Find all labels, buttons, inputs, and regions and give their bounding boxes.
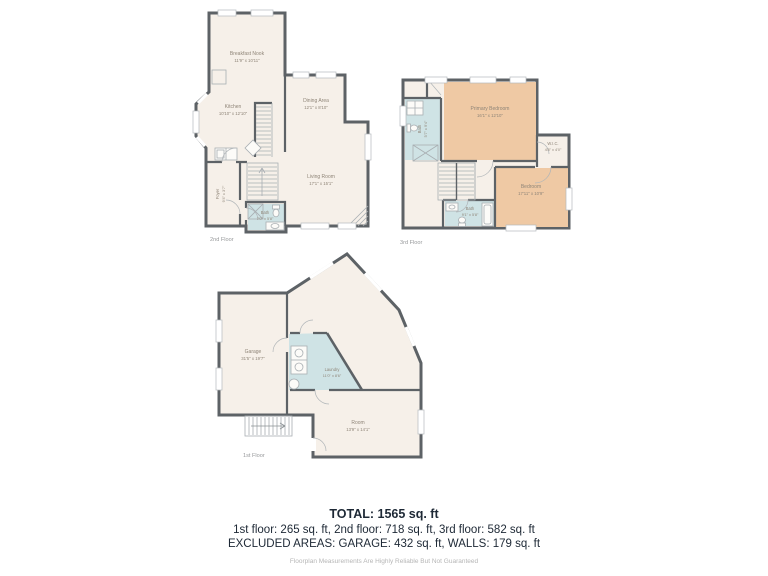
floorplan-page: Breakfast Nook 11'9" x 10'11" Kitchen 10… xyxy=(0,0,768,576)
water-heater xyxy=(289,379,299,389)
bedroom-fill xyxy=(496,168,568,227)
summary: TOTAL: 1565 sq. ft 1st floor: 265 sq. ft… xyxy=(0,507,768,565)
room-label-bedroom: Bedroom xyxy=(521,184,541,190)
room-dims-room: 13'9" x 14'1" xyxy=(346,427,370,432)
exterior-stairs xyxy=(245,416,292,436)
room-label-bath2: Bath xyxy=(261,210,270,215)
room-dims-wic: 4'8" x 4'0" xyxy=(545,148,562,152)
room-label-living: Living Room xyxy=(307,174,335,180)
room-dims-bedroom: 17'11" x 10'9" xyxy=(518,191,544,196)
floor-label-1st: 1st Floor xyxy=(243,453,265,459)
room-label-wic: W.I.C. xyxy=(547,141,558,146)
room-dims-bath2: 7'0" x 5'8" xyxy=(257,217,274,221)
primary-bedroom-fill xyxy=(444,82,536,160)
floor-label-3rd: 3rd Floor xyxy=(400,240,423,246)
room-dims-bath-upper: 5'7" x 9'4" xyxy=(424,120,428,137)
room-dims-breakfast-nook: 11'9" x 10'11" xyxy=(234,58,260,63)
room-label-kitchen: Kitchen xyxy=(225,104,242,110)
summary-disclaimer: Floorplan Measurements Are Highly Reliab… xyxy=(0,558,768,565)
room-label-bath-lower: Bath xyxy=(466,206,475,211)
room-dims-kitchen: 10'10" x 12'10" xyxy=(219,111,248,116)
room-dims-dining: 12'1" x 8'10" xyxy=(304,105,328,110)
third-floor-plan: Primary Bedroom 16'1" x 12'10" W.I.C. 4'… xyxy=(398,72,578,250)
room-label-primary-bedroom: Primary Bedroom xyxy=(471,106,510,112)
room-dims-foyer: 9'4" x 3'7" xyxy=(222,185,226,202)
entry-door-gap xyxy=(310,438,316,451)
room-dims-garage: 31'5" x 19'7" xyxy=(241,356,265,361)
second-floor-plan: Breakfast Nook 11'9" x 10'11" Kitchen 10… xyxy=(188,8,378,246)
summary-excluded-areas: EXCLUDED AREAS: GARAGE: 432 sq. ft, WALL… xyxy=(0,537,768,551)
first-floor-plan: Garage 31'5" x 19'7" Laundry 11'0" x 8'6… xyxy=(215,250,430,462)
room-dims-bath-lower: 9'1" x 5'8" xyxy=(462,213,479,217)
room-label-room: Room xyxy=(351,420,364,426)
room-label-foyer: Foyer xyxy=(215,188,220,199)
room-label-dining: Dining Area xyxy=(303,98,329,104)
room-dims-living: 17'1" x 15'1" xyxy=(309,181,333,186)
summary-total: TOTAL: 1565 sq. ft xyxy=(0,507,768,521)
summary-floor-areas: 1st floor: 265 sq. ft, 2nd floor: 718 sq… xyxy=(0,523,768,537)
room-dims-primary-bedroom: 16'1" x 12'10" xyxy=(477,113,503,118)
room-label-breakfast-nook: Breakfast Nook xyxy=(230,51,265,57)
room-dims-laundry: 11'0" x 8'6" xyxy=(323,374,342,378)
room-label-laundry: Laundry xyxy=(325,367,341,372)
floor-label-2nd: 2nd Floor xyxy=(210,237,234,243)
room-label-garage: Garage xyxy=(245,349,262,355)
room-label-bath-upper: Bath xyxy=(417,124,422,133)
